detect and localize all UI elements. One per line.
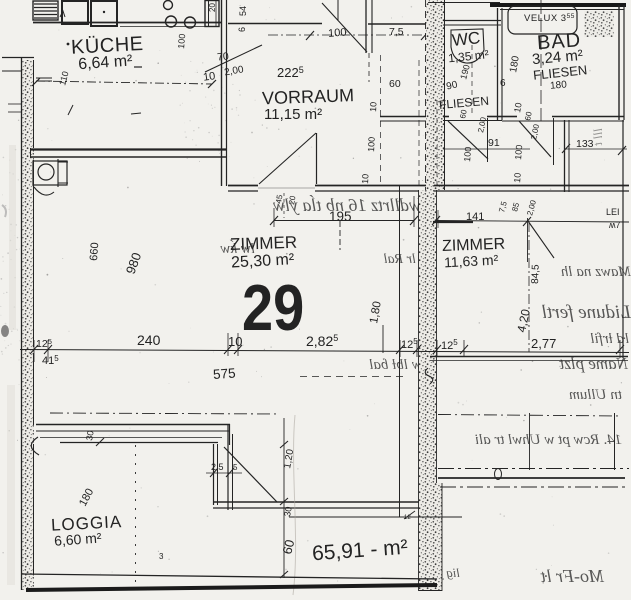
svg-text:LEI: LEI — [606, 207, 620, 217]
svg-text:10: 10 — [368, 102, 379, 113]
svg-text:84,5: 84,5 — [530, 264, 542, 284]
svg-text:ʍ7: ʍ7 — [609, 220, 621, 230]
svg-text:WC: WC — [451, 28, 481, 50]
svg-text:91: 91 — [488, 137, 500, 149]
svg-text:25,30 m²: 25,30 m² — [231, 251, 296, 271]
svg-text:VORRAUM: VORRAUM — [262, 85, 355, 108]
svg-text:10: 10 — [202, 70, 216, 84]
svg-text:10: 10 — [512, 102, 524, 114]
svg-text:100: 100 — [366, 137, 377, 153]
svg-text:100: 100 — [176, 33, 187, 49]
svg-text:6,60 m²: 6,60 m² — [54, 529, 103, 548]
svg-text:70: 70 — [217, 50, 230, 63]
svg-text:6: 6 — [237, 27, 247, 32]
svg-text:6: 6 — [500, 78, 506, 89]
svg-text:10: 10 — [228, 334, 242, 349]
svg-text:Mo-Fr ŀt: Mo-Fr ŀt — [540, 566, 605, 586]
svg-text:lw lbƚ ɓal: lw lbƚ ɓal — [369, 357, 426, 373]
svg-text:2,5: 2,5 — [211, 462, 224, 472]
svg-text:Mawz na lh: Mawz na lh — [561, 264, 631, 280]
svg-text:29: 29 — [242, 271, 304, 344]
svg-text:2,77: 2,77 — [531, 336, 556, 351]
svg-text:100: 100 — [328, 27, 347, 40]
svg-text:10: 10 — [360, 174, 371, 185]
svg-text:30: 30 — [282, 506, 294, 518]
svg-text:12: 12 — [404, 515, 411, 521]
svg-text:100: 100 — [462, 146, 473, 162]
svg-text:7,5: 7,5 — [389, 26, 404, 38]
svg-text:11,15 m²: 11,15 m² — [264, 106, 322, 123]
svg-text:54: 54 — [238, 6, 248, 16]
svg-text:195: 195 — [329, 209, 352, 224]
svg-text:180: 180 — [550, 79, 568, 91]
svg-text:tn Ullum: tn Ullum — [569, 387, 622, 403]
svg-text:660: 660 — [88, 242, 101, 261]
svg-text:575: 575 — [213, 365, 237, 382]
svg-text:20: 20 — [208, 3, 217, 12]
svg-text:100: 100 — [513, 144, 524, 160]
svg-text:60: 60 — [389, 78, 401, 90]
svg-text:240: 240 — [137, 332, 161, 348]
svg-text:30: 30 — [84, 430, 96, 442]
svg-text:14. Rcw pt w Uhwl tr ali: 14. Rcw pt w Uhwl tr ali — [475, 432, 622, 448]
svg-text:Lidune fertl: Lidune fertl — [542, 302, 631, 323]
svg-text:10: 10 — [512, 172, 523, 183]
svg-text:11,63 m²: 11,63 m² — [444, 252, 499, 271]
svg-text:141: 141 — [466, 211, 484, 223]
svg-text:5: 5 — [233, 463, 238, 472]
svg-text:3: 3 — [159, 552, 164, 561]
svg-text:133: 133 — [576, 138, 594, 150]
